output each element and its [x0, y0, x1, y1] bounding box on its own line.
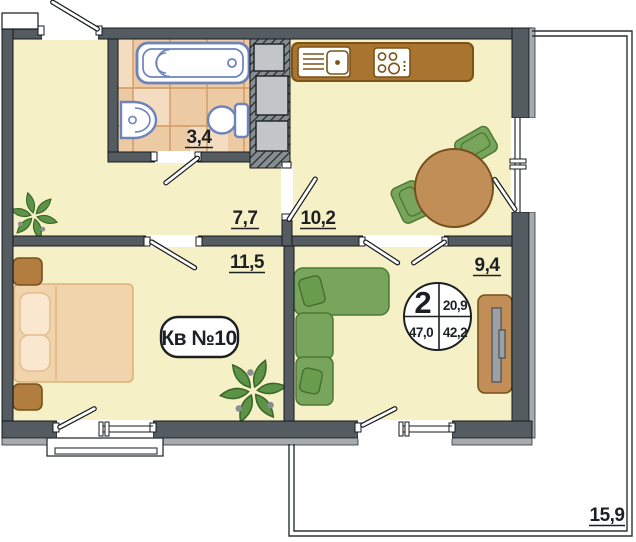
wall-segment: [284, 246, 294, 421]
wall-segment: [108, 39, 118, 162]
floor-plan: 3,4 7,7 10,2 11,5 9,4 15,9 Кв №10 2 20,9…: [0, 0, 636, 542]
wall-segment: [444, 236, 512, 246]
ventilation-shaft: [250, 39, 290, 168]
room-area-bathroom: 3,4: [187, 127, 213, 148]
wall-segment: [153, 421, 358, 438]
room-area-hallway: 7,7: [233, 208, 258, 229]
sink-icon: [298, 47, 350, 77]
wall-segment: [2, 421, 57, 438]
wall-facing: [529, 28, 535, 118]
apartment-number: Кв №10: [161, 327, 236, 350]
apartment-badge: Кв №10: [161, 317, 238, 357]
bed: [14, 284, 133, 382]
wall-facing: [452, 438, 532, 445]
wall-segment: [198, 236, 363, 246]
toilet: [208, 104, 248, 137]
rooms-count: 2: [414, 285, 431, 320]
wall-segment: [2, 28, 13, 438]
washbasin: [121, 102, 156, 138]
wall-segment: [98, 28, 532, 39]
entrance-landing: [2, 13, 38, 29]
wall-segment: [108, 152, 155, 162]
bedroom-balcony: [47, 438, 163, 456]
info-circle: 2 20,9 47,0 42,2: [404, 283, 471, 350]
wall-facing: [529, 212, 535, 438]
wall-segment: [13, 236, 146, 246]
room-area-living: 9,4: [475, 255, 501, 276]
kitchen-counter: [292, 43, 473, 81]
wall-segment: [452, 421, 532, 438]
bathtub: [137, 43, 249, 83]
pillow: [20, 293, 50, 336]
room-area-kitchen: 10,2: [301, 208, 336, 229]
wall-segment: [197, 152, 250, 162]
pillow: [20, 335, 50, 371]
wall-segment: [512, 28, 529, 118]
nightstand: [13, 258, 42, 285]
living-area: 20,9: [443, 298, 467, 313]
wall-segment: [282, 220, 292, 246]
floor-plan-drawing: 3,4 7,7 10,2 11,5 9,4 15,9 Кв №10 2 20,9…: [0, 0, 636, 542]
total-area: 42,2: [443, 325, 467, 340]
total-area-with-balcony: 47,0: [409, 325, 433, 340]
dining-table: [415, 149, 493, 227]
entrance-door: [50, 0, 100, 32]
wall-segment: [512, 212, 529, 438]
nightstand: [13, 384, 42, 410]
sofa-pillow: [299, 367, 324, 395]
cooktop-icon: [374, 48, 410, 77]
room-area-bedroom: 11,5: [230, 252, 265, 273]
tv-stand: [478, 295, 512, 393]
room-area-terrace: 15,9: [590, 505, 625, 526]
